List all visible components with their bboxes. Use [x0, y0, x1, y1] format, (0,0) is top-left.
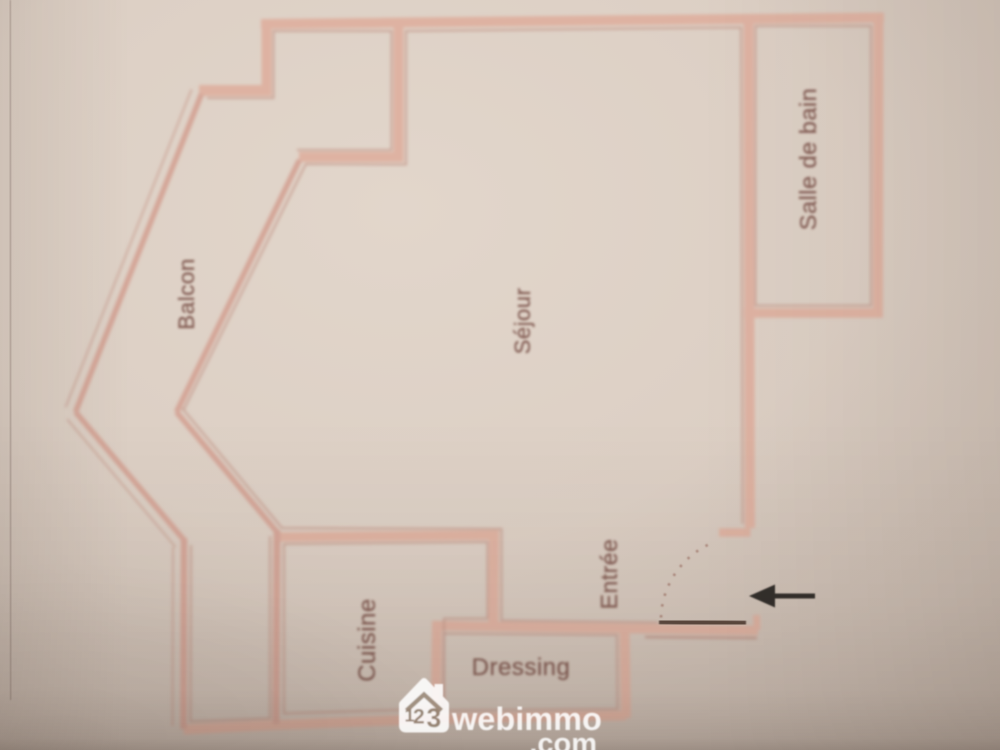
- svg-text:.com: .com: [529, 728, 597, 750]
- svg-text:Séjour: Séjour: [510, 288, 535, 355]
- svg-text:2: 2: [413, 706, 425, 729]
- svg-text:Balcon: Balcon: [174, 258, 199, 330]
- svg-text:3: 3: [427, 703, 442, 733]
